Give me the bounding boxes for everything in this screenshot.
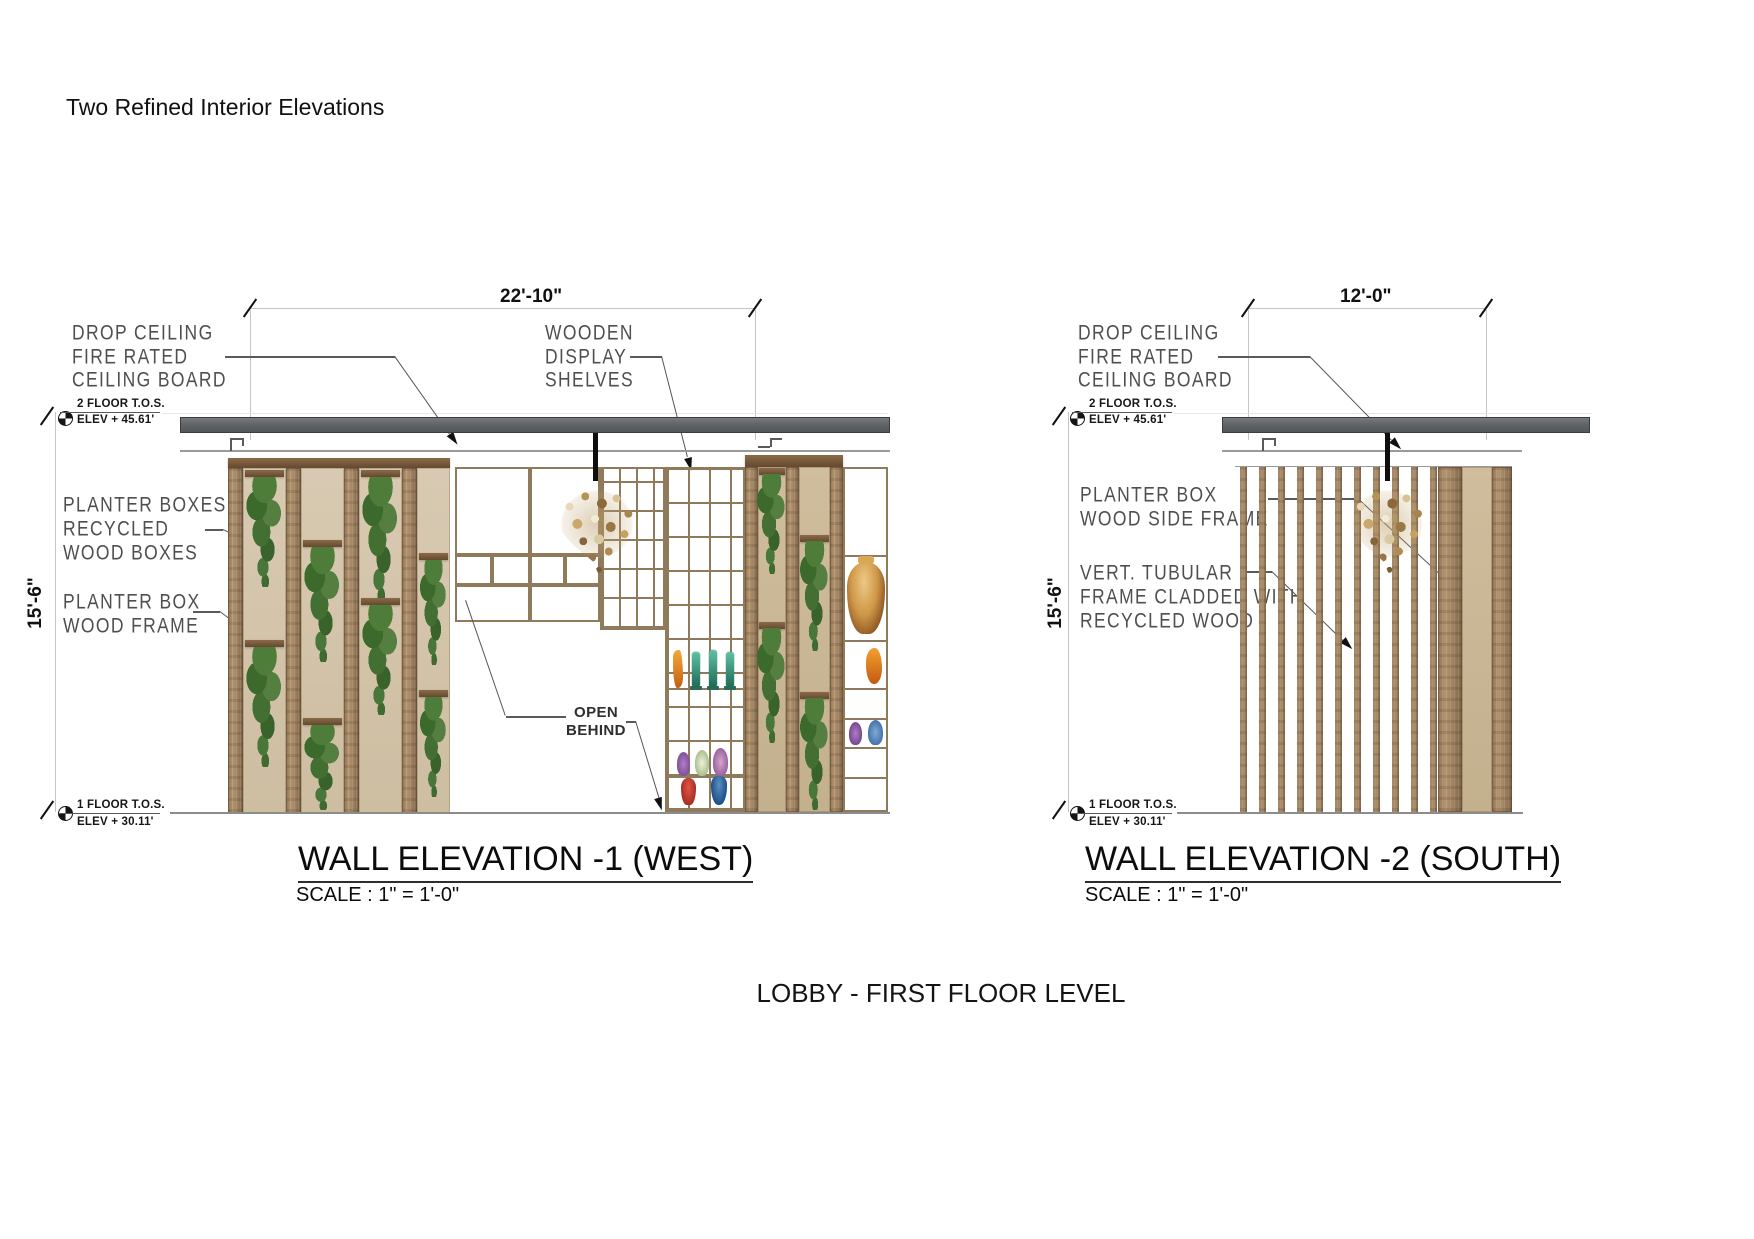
wood-strip xyxy=(228,468,243,813)
orange-glass-vase xyxy=(866,648,882,684)
label-planter-boxes: PLANTER BOXES xyxy=(63,494,227,518)
ceiling-step xyxy=(230,438,242,440)
label-drop-ceiling: DROP CEILING xyxy=(1078,322,1220,346)
label-planter-frame: WOOD FRAME xyxy=(63,615,199,639)
ceiling-step xyxy=(1274,438,1276,446)
planter-box xyxy=(245,470,284,477)
flower-vase xyxy=(677,752,690,776)
shelf-line xyxy=(843,747,888,749)
ivy-plant xyxy=(419,697,448,797)
wood-slat xyxy=(1278,467,1285,812)
elevation-scale: SCALE : 1" = 1'-0" xyxy=(296,884,459,907)
shelf-line xyxy=(843,688,888,690)
display-frame xyxy=(455,555,492,585)
label-vert-tubular: RECYCLED WOOD xyxy=(1080,610,1254,634)
green-candlestick xyxy=(709,650,717,686)
green-candlestick xyxy=(692,652,700,686)
label-drop-ceiling: CEILING BOARD xyxy=(1078,369,1233,393)
level-elevation: ELEV + 45.61' xyxy=(77,414,154,426)
leader-line xyxy=(1218,356,1310,358)
shelf-line xyxy=(665,776,745,778)
width-dimension: 22'-10" xyxy=(500,286,562,308)
level-underline xyxy=(1072,412,1172,413)
leader-line xyxy=(205,529,223,531)
level-elevation: ELEV + 30.11' xyxy=(77,816,154,828)
label-planter-frame: PLANTER BOX xyxy=(63,591,201,615)
structural-beam xyxy=(1222,417,1590,433)
floor-line xyxy=(1177,812,1523,814)
green-candlestick xyxy=(726,652,734,686)
planter-header-board xyxy=(745,455,843,467)
ceiling-step xyxy=(758,446,770,448)
ivy-plant xyxy=(361,605,400,715)
elevation-scale: SCALE : 1" = 1'-0" xyxy=(1085,884,1248,907)
level-underline xyxy=(60,813,160,814)
planter-box xyxy=(419,690,448,697)
label-open-behind: BEHIND xyxy=(566,722,626,739)
leader-line xyxy=(635,721,660,800)
wood-side-frame xyxy=(1438,467,1462,812)
level-line xyxy=(162,413,888,414)
level-target-icon xyxy=(58,411,73,426)
display-frame xyxy=(492,555,530,585)
wood-strip xyxy=(830,467,843,812)
leader-arrow-icon xyxy=(447,432,461,447)
planter-box xyxy=(361,598,400,605)
wood-slat xyxy=(1259,467,1266,812)
leader-line xyxy=(630,356,662,358)
elevation-title: WALL ELEVATION -2 (SOUTH) xyxy=(1085,840,1561,883)
level-label: 1 FLOOR T.O.S. xyxy=(1089,799,1177,811)
ceiling-step xyxy=(1262,438,1264,451)
label-vert-tubular: FRAME CLADDED WITH xyxy=(1080,586,1304,610)
label-display-shelves: DISPLAY xyxy=(545,346,627,370)
wood-strip xyxy=(286,468,301,813)
drawing-sheet: Two Refined Interior Elevations LOBBY - … xyxy=(0,0,1754,1239)
label-vert-tubular: VERT. TUBULAR xyxy=(1080,562,1233,586)
level-underline xyxy=(60,412,160,413)
label-display-shelves: WOODEN xyxy=(545,322,634,346)
shelf-line xyxy=(843,718,888,720)
leader-line xyxy=(193,611,220,613)
dimension-line xyxy=(1248,308,1486,309)
ceiling-line xyxy=(1222,450,1522,452)
leader-line xyxy=(661,356,688,457)
wood-slat xyxy=(1240,467,1247,812)
height-dimension: 15'-6" xyxy=(1045,565,1067,641)
chandelier-stem xyxy=(593,433,598,481)
flower-vase xyxy=(849,722,862,745)
level-underline xyxy=(1072,813,1172,814)
shelf-line xyxy=(843,640,888,642)
level-line xyxy=(1174,413,1592,414)
ceiling-step xyxy=(230,438,232,451)
ceiling-step xyxy=(770,438,782,440)
vertical-dimension-line xyxy=(55,412,56,812)
wood-slat xyxy=(1297,467,1304,812)
leader-arrow-icon xyxy=(654,797,665,812)
leader-line xyxy=(225,356,395,358)
planter-box xyxy=(303,540,342,547)
ivy-plant xyxy=(799,698,830,810)
orange-glass-sculpture xyxy=(673,650,683,688)
level-elevation: ELEV + 30.11' xyxy=(1089,816,1166,828)
ceiling-step xyxy=(1262,438,1274,440)
level-tick xyxy=(1052,800,1066,819)
wood-slat xyxy=(1335,467,1342,812)
label-open-behind: OPEN xyxy=(574,704,618,721)
wood-strip xyxy=(402,468,417,813)
ceiling-line xyxy=(180,450,890,452)
level-label: 2 FLOOR T.O.S. xyxy=(1089,398,1177,410)
label-planter-boxes: RECYCLED xyxy=(63,518,169,542)
flower-vase xyxy=(695,750,709,776)
height-dimension: 15'-6" xyxy=(25,565,47,641)
planter-box xyxy=(361,470,400,477)
ivy-plant xyxy=(245,477,284,587)
planter-side-panel xyxy=(1462,467,1492,812)
ivy-plant xyxy=(419,560,448,665)
ivy-plant xyxy=(799,541,830,651)
floor-line xyxy=(170,812,890,814)
floor-level-caption: LOBBY - FIRST FLOOR LEVEL xyxy=(741,978,1141,1009)
flower-vase xyxy=(713,748,728,776)
leader-line xyxy=(506,716,566,718)
label-drop-ceiling: CEILING BOARD xyxy=(72,369,227,393)
ivy-plant xyxy=(303,725,342,810)
wood-strip xyxy=(786,467,799,812)
amber-vase xyxy=(847,562,885,634)
dimension-line xyxy=(250,308,755,309)
wood-strip xyxy=(344,468,359,813)
level-tick xyxy=(1052,406,1066,425)
structural-beam xyxy=(180,417,890,433)
level-tick xyxy=(40,406,54,425)
level-tick xyxy=(40,800,54,819)
ivy-plant xyxy=(303,547,342,662)
leader-arrow-icon xyxy=(1340,637,1355,652)
label-drop-ceiling: FIRE RATED xyxy=(1078,346,1194,370)
planter-box xyxy=(303,718,342,725)
ivy-plant xyxy=(756,628,787,743)
label-side-frame: PLANTER BOX xyxy=(1080,484,1218,508)
candlestick-base xyxy=(707,686,719,690)
level-elevation: ELEV + 45.61' xyxy=(1089,414,1166,426)
display-frame xyxy=(455,467,530,555)
label-drop-ceiling: DROP CEILING xyxy=(72,322,214,346)
width-dimension: 12'-0" xyxy=(1340,286,1392,308)
candlestick-base xyxy=(690,686,702,690)
flower-vase xyxy=(868,720,883,745)
label-drop-ceiling: FIRE RATED xyxy=(72,346,188,370)
ivy-plant xyxy=(245,647,284,767)
elevation-title: WALL ELEVATION -1 (WEST) xyxy=(298,840,753,883)
chandelier-stem xyxy=(1385,433,1390,481)
page-title: Two Refined Interior Elevations xyxy=(66,94,384,121)
ceiling-step xyxy=(242,438,244,446)
label-display-shelves: SHELVES xyxy=(545,369,634,393)
ivy-plant xyxy=(756,474,787,574)
level-label: 2 FLOOR T.O.S. xyxy=(77,398,165,410)
display-frame xyxy=(530,555,565,585)
candlestick-base xyxy=(724,686,736,690)
shelf-line xyxy=(843,777,888,779)
level-target-icon xyxy=(1070,411,1085,426)
level-label: 1 FLOOR T.O.S. xyxy=(77,799,165,811)
red-vase xyxy=(681,778,696,805)
planter-header-board xyxy=(228,458,450,468)
label-planter-boxes: WOOD BOXES xyxy=(63,542,198,566)
display-frame xyxy=(530,585,600,622)
wood-side-frame xyxy=(1492,467,1512,812)
wood-slat xyxy=(1316,467,1323,812)
planter-box xyxy=(245,640,284,647)
planter-box xyxy=(419,553,448,560)
ivy-plant xyxy=(361,477,400,602)
vertical-dimension-line xyxy=(1068,412,1069,812)
